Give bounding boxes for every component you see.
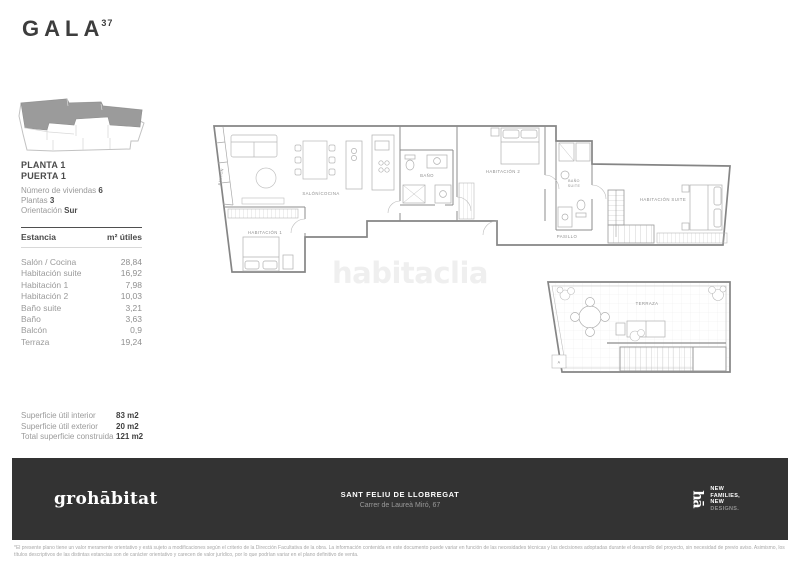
legal-disclaimer: *El presente plano tiene un valor merame… [14,545,786,559]
door-label: PUERTA 1 [21,171,66,182]
brand-logo: GALA37 [22,16,113,42]
table-row: Terraza19,24 [21,337,142,348]
summary-row-total: Total superficie construida121 m2 [21,432,143,443]
bedroom2-wardrobe [459,183,474,219]
table-row: Habitación 17,98 [21,280,142,291]
kitchen-counters [346,135,394,190]
room-areas-table: Estancia m² útiles Salón / Cocina28,84 H… [21,227,142,348]
location-address: Carrer de Laureà Miró, 67 [341,502,460,509]
table-rows: Salón / Cocina28,84 Habitación suite16,9… [21,257,142,348]
room-label-terraza: TERRAZA [636,301,659,306]
table-header: Estancia m² útiles [21,227,142,248]
room-label-habitacion-1: HABITACIÓN 1 [248,230,283,235]
bedroom1-wardrobe [228,209,298,218]
terrace-plan: A TERRAZA [548,282,730,372]
developer-logo: grohābitat [54,489,158,509]
floor-label: PLANTA 1 [21,160,66,171]
disclaimer-line-2: títulos descriptivos de las distintas es… [14,552,786,559]
unit-identifier: PLANTA 1 PUERTA 1 [21,160,66,182]
brand-name: GALA [22,16,104,41]
building-facts: Número de viviendas 6 Plantas 3 Orientac… [21,186,103,216]
table-row: Habitación suite16,92 [21,268,142,279]
bedroom1-furniture [243,237,293,271]
table-row: Baño3,63 [21,314,142,325]
site-plan-icon [13,96,149,156]
bathroom-fixtures [403,155,451,203]
terrace-marker: A [558,361,561,365]
suite-wardrobe [657,233,727,243]
col-header-area: m² útiles [107,232,142,242]
suite-furniture [682,185,722,230]
floor-plan: BALCÓN [195,105,775,405]
room-label-salon-cocina: SALÓN/COCINA [302,191,339,196]
room-label-bano: BAÑO [420,173,434,178]
brand-superscript: 37 [101,18,113,28]
rug [256,168,276,188]
disclaimer-line-1: *El presente plano tiene un valor merame… [14,545,786,552]
fact-floors: Plantas 3 [21,196,103,206]
floor-plan-drawing: BALCÓN [195,105,775,405]
table-row: Baño suite3,21 [21,303,142,314]
bedroom2-furniture [491,128,539,164]
surface-summary: Superficie útil interior83 m2 Superficie… [21,411,143,443]
table-row: Balcón0,9 [21,325,142,336]
room-label-habitacion-suite: HABITACIÓN SUITE [640,197,686,202]
fact-orientation: Orientación Sur [21,206,103,216]
dining-table [295,141,335,179]
col-header-room: Estancia [21,232,56,242]
sofa [231,135,277,157]
ha-monogram-icon: hā [689,486,705,512]
table-row: Habitación 210,03 [21,291,142,302]
plan-sheet-page: GALA37 PLANTA 1 PUERTA 1 Número de vivie… [0,0,800,565]
room-label-habitacion-2: HABITACIÓN 2 [486,169,521,174]
fact-dwellings: Número de viviendas 6 [21,186,103,196]
summary-row-interior: Superficie útil interior83 m2 [21,411,143,422]
sideboard [242,198,284,204]
table-row: Salón / Cocina28,84 [21,257,142,268]
footer-bar: grohābitat SANT FELIU DE LLOBREGAT Carre… [12,458,788,540]
location-name: SANT FELIU DE LLOBREGAT [341,490,460,499]
room-label-bano-suite-2: SUITE [568,184,581,188]
room-label-bano-suite: BAÑO [568,178,580,183]
tagline-text: NEW FAMILIES, NEW DESIGNS. [710,486,740,512]
project-location: SANT FELIU DE LLOBREGAT Carrer de Laureà… [341,490,460,509]
summary-row-exterior: Superficie útil exterior20 m2 [21,422,143,433]
room-label-pasillo: PASILLO [557,234,578,239]
tagline-badge: hā NEW FAMILIES, NEW DESIGNS. [689,486,740,512]
